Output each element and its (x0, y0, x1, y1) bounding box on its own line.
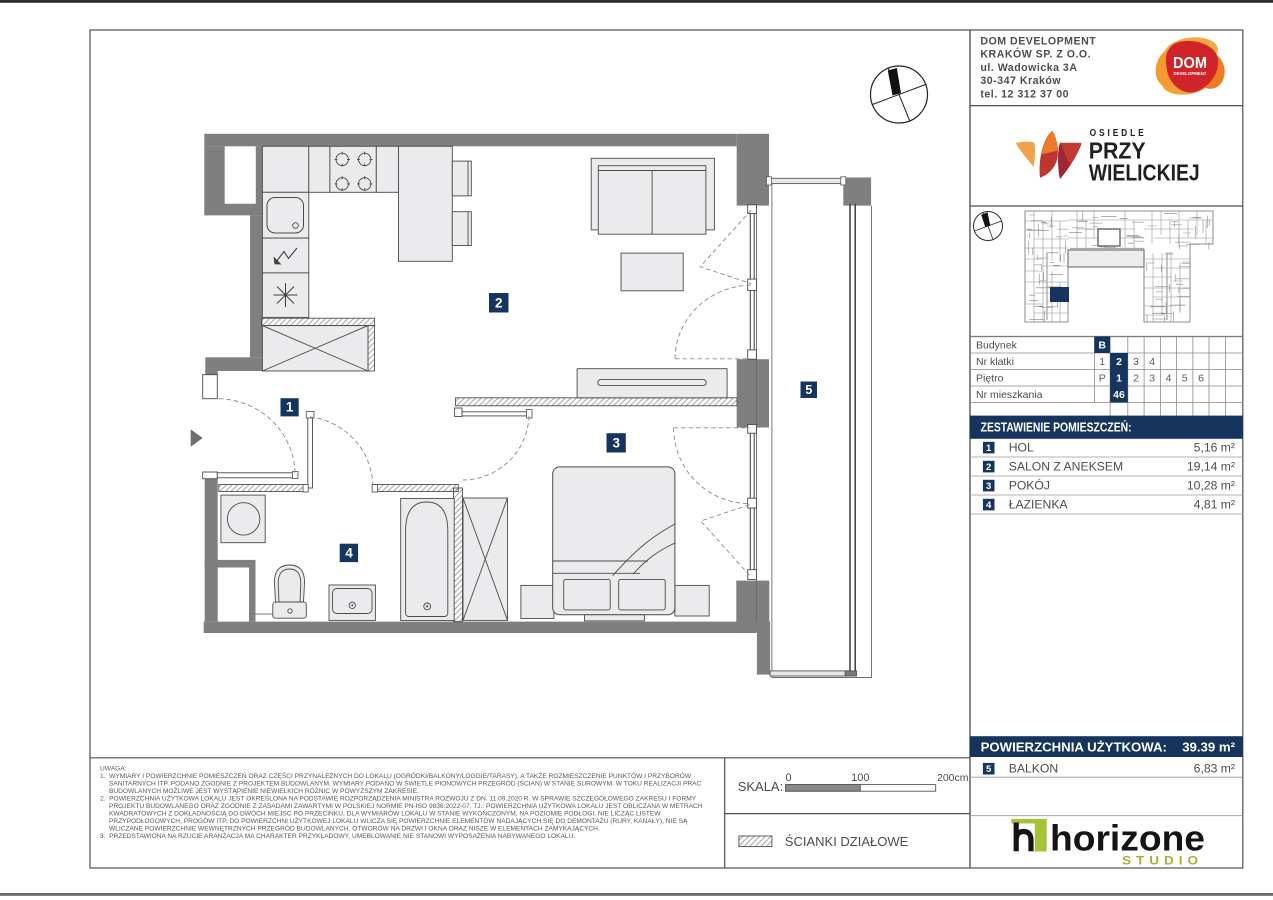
svg-text:4: 4 (986, 500, 992, 511)
svg-text:10,28 m²: 10,28 m² (1187, 479, 1235, 493)
svg-text:2: 2 (1116, 356, 1122, 368)
svg-text:ŁAZIENKA: ŁAZIENKA (1009, 498, 1069, 512)
svg-text:4: 4 (1149, 356, 1155, 368)
svg-text:200cm: 200cm (937, 772, 969, 784)
svg-text:PRZYPODŁOGOWYCH, PROGÓW ITP. D: PRZYPODŁOGOWYCH, PROGÓW ITP. DO POWIERZC… (109, 816, 688, 825)
svg-text:3: 3 (612, 436, 620, 451)
svg-text:HOL: HOL (1009, 441, 1034, 455)
svg-text:Budynek: Budynek (976, 340, 1018, 352)
svg-text:1: 1 (286, 400, 294, 415)
svg-text:1: 1 (986, 443, 992, 454)
svg-text:1. WYMIARY I POWIERZCHNIE POM: 1. WYMIARY I POWIERZCHNIE POMIESZCZEŃ OR… (100, 771, 692, 780)
svg-text:39.39 m²: 39.39 m² (1182, 740, 1235, 755)
svg-text:Nr mieszkania: Nr mieszkania (976, 389, 1043, 401)
svg-text:5: 5 (805, 383, 812, 397)
svg-text:4: 4 (1166, 373, 1172, 385)
svg-text:3. PRZEDSTAWIONA NA RZUCIE AR: 3. PRZEDSTAWIONA NA RZUCIE ARANŻACJA MA … (100, 831, 575, 840)
svg-text:4,81 m²: 4,81 m² (1194, 498, 1235, 512)
svg-text:STUDIO: STUDIO (1122, 856, 1203, 868)
svg-text:DEVELOPMENT: DEVELOPMENT (1174, 71, 1207, 76)
svg-text:1: 1 (1116, 373, 1122, 385)
svg-text:100: 100 (851, 772, 869, 784)
svg-text:WIELICKIEJ: WIELICKIEJ (1089, 160, 1200, 186)
svg-text:30-347 Kraków: 30-347 Kraków (980, 75, 1061, 87)
svg-text:2: 2 (986, 462, 991, 473)
svg-text:SALON Z ANEKSEM: SALON Z ANEKSEM (1009, 460, 1123, 474)
svg-text:horizone: horizone (1050, 818, 1205, 859)
svg-text:P: P (1099, 373, 1106, 385)
svg-text:0: 0 (786, 772, 792, 784)
svg-text:46: 46 (1113, 389, 1125, 401)
svg-text:SANITARNYCH ITP. PODANO ZGODNI: SANITARNYCH ITP. PODANO ZGODNIE Z PROJEK… (109, 779, 702, 788)
svg-text:BUDOWLANYCH MOŻLIWE JEST WYSTĄ: BUDOWLANYCH MOŻLIWE JEST WYSTĄPIENIE NIE… (109, 786, 419, 795)
svg-text:1: 1 (1099, 356, 1105, 368)
svg-text:19,14 m²: 19,14 m² (1187, 460, 1235, 474)
svg-text:PROJEKTU BUDOWLANEGO ORAZ ZGOD: PROJEKTU BUDOWLANEGO ORAZ ZGODNIE Z ZASA… (109, 801, 703, 810)
svg-text:3: 3 (1149, 373, 1155, 385)
svg-text:SKALA:: SKALA: (738, 779, 784, 794)
svg-text:5: 5 (986, 764, 992, 775)
svg-text:ul. Wadowicka 3A: ul. Wadowicka 3A (980, 62, 1077, 74)
svg-text:KRAKÓW SP. Z O.O.: KRAKÓW SP. Z O.O. (980, 48, 1091, 61)
svg-text:KWADRATOWYCH Z DOKŁADNOŚCIĄ DO: KWADRATOWYCH Z DOKŁADNOŚCIĄ DO DWÓCH MIE… (109, 809, 661, 818)
svg-text:4: 4 (345, 545, 353, 560)
svg-text:B: B (1098, 340, 1106, 352)
svg-text:Nr klatki: Nr klatki (976, 356, 1014, 368)
svg-text:2: 2 (1133, 373, 1139, 385)
svg-text:POKÓJ: POKÓJ (1009, 478, 1050, 493)
svg-text:2. POWIERZCHNIA UŻYTKOWA LOKA: 2. POWIERZCHNIA UŻYTKOWA LOKALU JEST OKR… (100, 794, 697, 803)
svg-text:BALKON: BALKON (1009, 762, 1058, 776)
svg-text:Piętro: Piętro (976, 373, 1004, 385)
svg-text:ZESTAWIENIE POMIESZCZEŃ:: ZESTAWIENIE POMIESZCZEŃ: (981, 420, 1132, 435)
svg-text:DOM: DOM (1173, 55, 1207, 72)
svg-text:ŚCIANKI DZIAŁOWE: ŚCIANKI DZIAŁOWE (785, 834, 909, 849)
svg-text:POWIERZCHNIA UŻYTKOWA:: POWIERZCHNIA UŻYTKOWA: (981, 740, 1167, 755)
svg-text:3: 3 (986, 481, 991, 492)
svg-text:WLICZANE POWIERZCHNIE WEWNĘTRZ: WLICZANE POWIERZCHNIE WEWNĘTRZNYCH PRZEG… (109, 824, 600, 833)
svg-text:2: 2 (495, 295, 503, 310)
svg-text:6,83 m²: 6,83 m² (1194, 762, 1235, 776)
svg-text:5,16 m²: 5,16 m² (1194, 441, 1235, 455)
svg-text:3: 3 (1133, 356, 1139, 368)
svg-text:tel. 12 312 37 00: tel. 12 312 37 00 (980, 88, 1069, 100)
svg-text:DOM DEVELOPMENT: DOM DEVELOPMENT (980, 36, 1096, 48)
svg-text:UWAGA:: UWAGA: (100, 766, 127, 773)
svg-text:6: 6 (1198, 373, 1204, 385)
svg-text:5: 5 (1182, 373, 1188, 385)
